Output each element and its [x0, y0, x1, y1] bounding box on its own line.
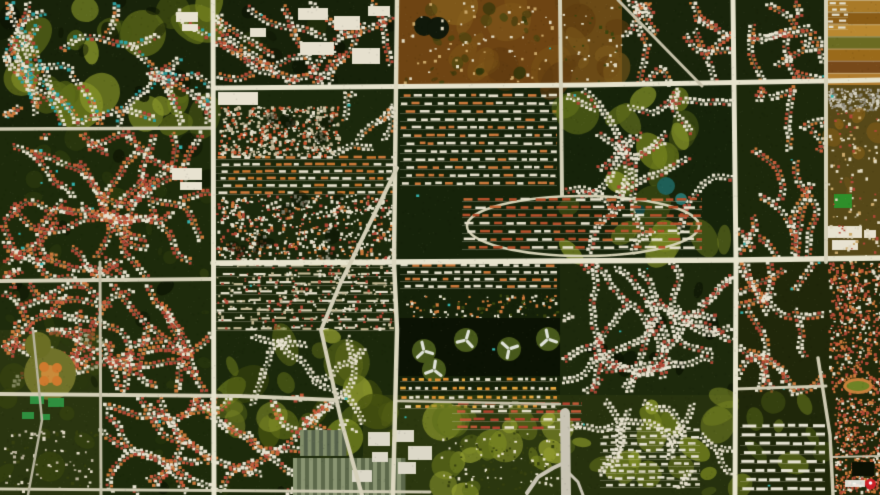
aerial-photo-canvas — [0, 0, 880, 495]
aerial-photo — [0, 0, 880, 495]
screenshot-root — [0, 0, 880, 495]
